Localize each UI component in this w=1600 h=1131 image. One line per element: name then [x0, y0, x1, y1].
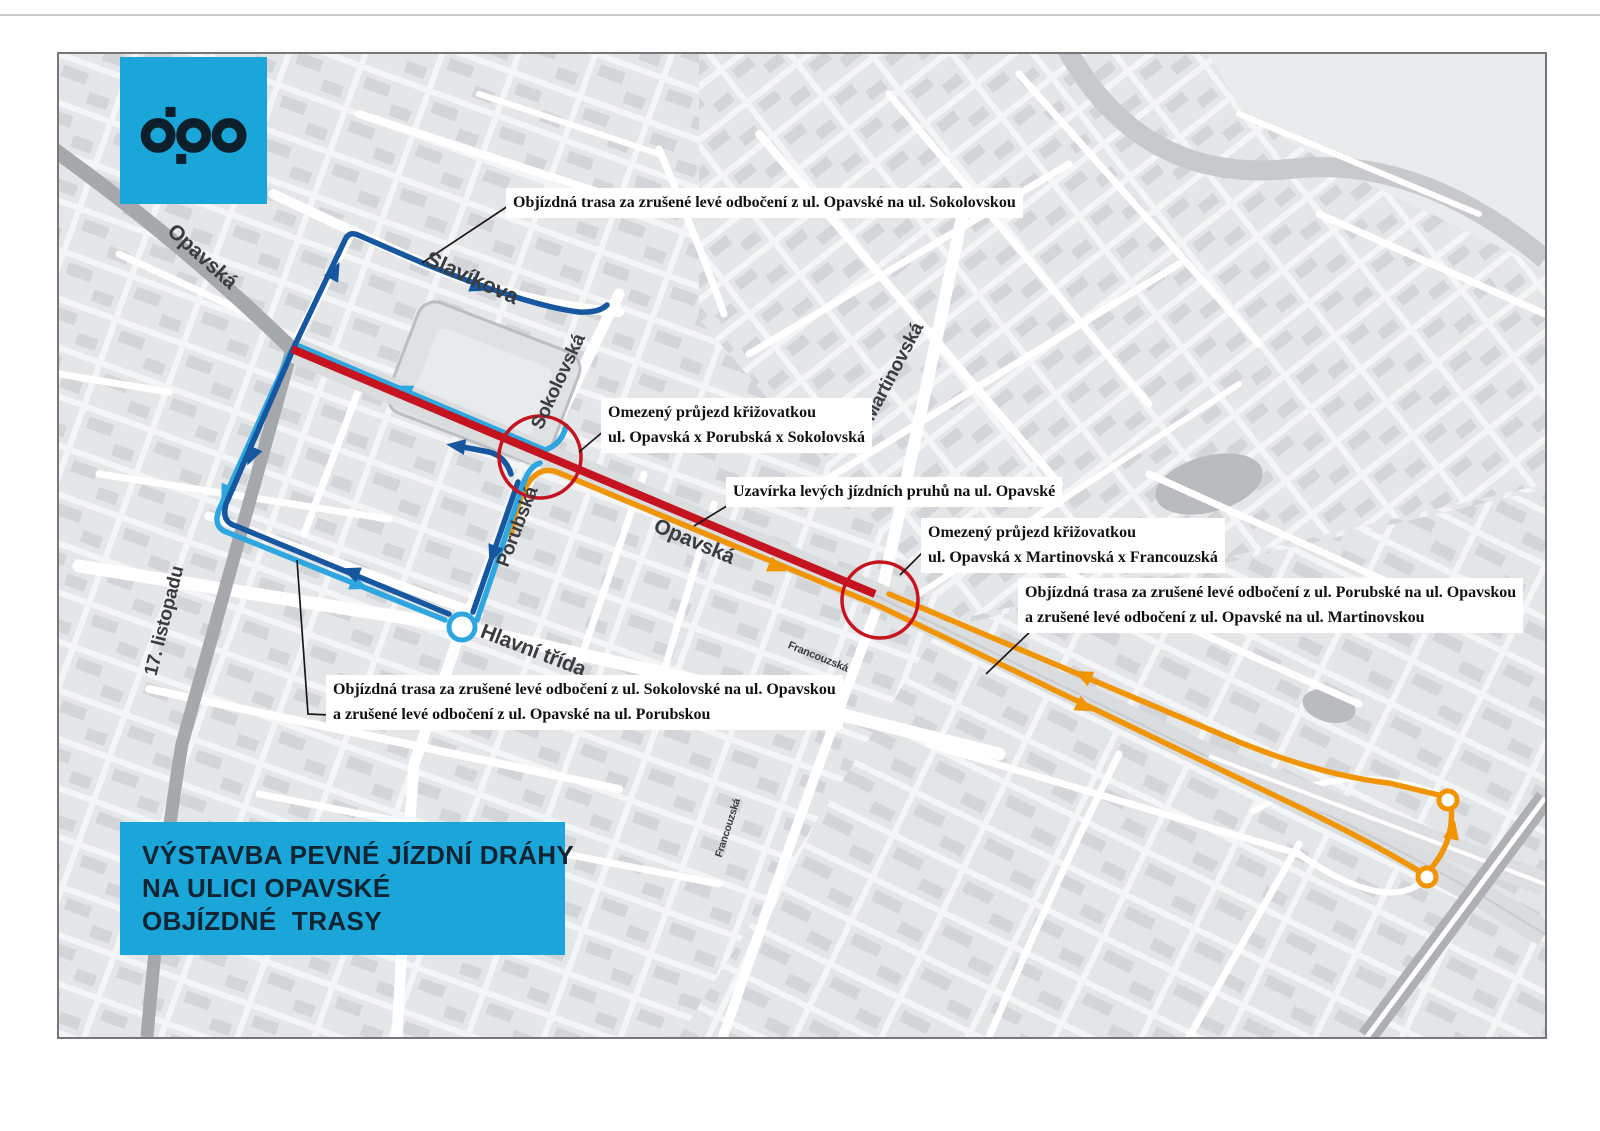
roundabout-ring [449, 614, 475, 640]
annotation-line: a zrušené levé odbočení z ul. Opavské na… [333, 702, 836, 727]
annotation-restricted-porubska: Omezený průjezd křižovatkou ul. Opavská … [601, 398, 872, 453]
map-title: VÝSTAVBA PEVNÉ JÍZDNÍ DRÁHY NA ULICI OPA… [120, 822, 565, 955]
title-line-3: OBJÍZDNÉ TRASY [142, 905, 565, 938]
title-line-1: VÝSTAVBA PEVNÉ JÍZDNÍ DRÁHY [142, 839, 565, 872]
annotation-detour-sokolovska-opavska: Objízdná trasa za zrušené levé odbočení … [326, 675, 843, 730]
annotation-line: Objízdná trasa za zrušené levé odbočení … [333, 677, 836, 702]
detour-map-page: Opavská Slavíkova Sokolovská Porubská Op… [0, 0, 1600, 1131]
annotation-detour-porubska-opavska: Objízdná trasa za zrušené levé odbočení … [1018, 578, 1523, 633]
dpo-logo-icon [140, 94, 248, 168]
annotation-line: ul. Opavská x Porubská x Sokolovská [608, 425, 865, 450]
dpo-logo [120, 57, 267, 204]
annotation-line: ul. Opavská x Martinovská x Francouzská [928, 545, 1218, 570]
annotation-line: Omezený průjezd křižovatkou [928, 520, 1218, 545]
orange-roundabout-north [1439, 791, 1457, 809]
annotation-line: Objízdná trasa za zrušené levé odbočení … [513, 190, 1016, 215]
annotation-lane-closure: Uzavírka levých jízdních pruhů na ul. Op… [726, 477, 1062, 507]
annotation-restricted-martinovska: Omezený průjezd křižovatkou ul. Opavská … [921, 518, 1225, 573]
orange-roundabout-south [1418, 868, 1436, 886]
annotation-line: Omezený průjezd křižovatkou [608, 400, 865, 425]
annotation-detour-opavska-sokolovska: Objízdná trasa za zrušené levé odbočení … [506, 188, 1023, 218]
page-top-rule [0, 14, 1600, 16]
annotation-line: Objízdná trasa za zrušené levé odbočení … [1025, 580, 1516, 605]
annotation-line: a zrušené levé odbočení z ul. Opavské na… [1025, 605, 1516, 630]
annotation-line: Uzavírka levých jízdních pruhů na ul. Op… [733, 479, 1055, 504]
title-line-2: NA ULICI OPAVSKÉ [142, 872, 565, 905]
